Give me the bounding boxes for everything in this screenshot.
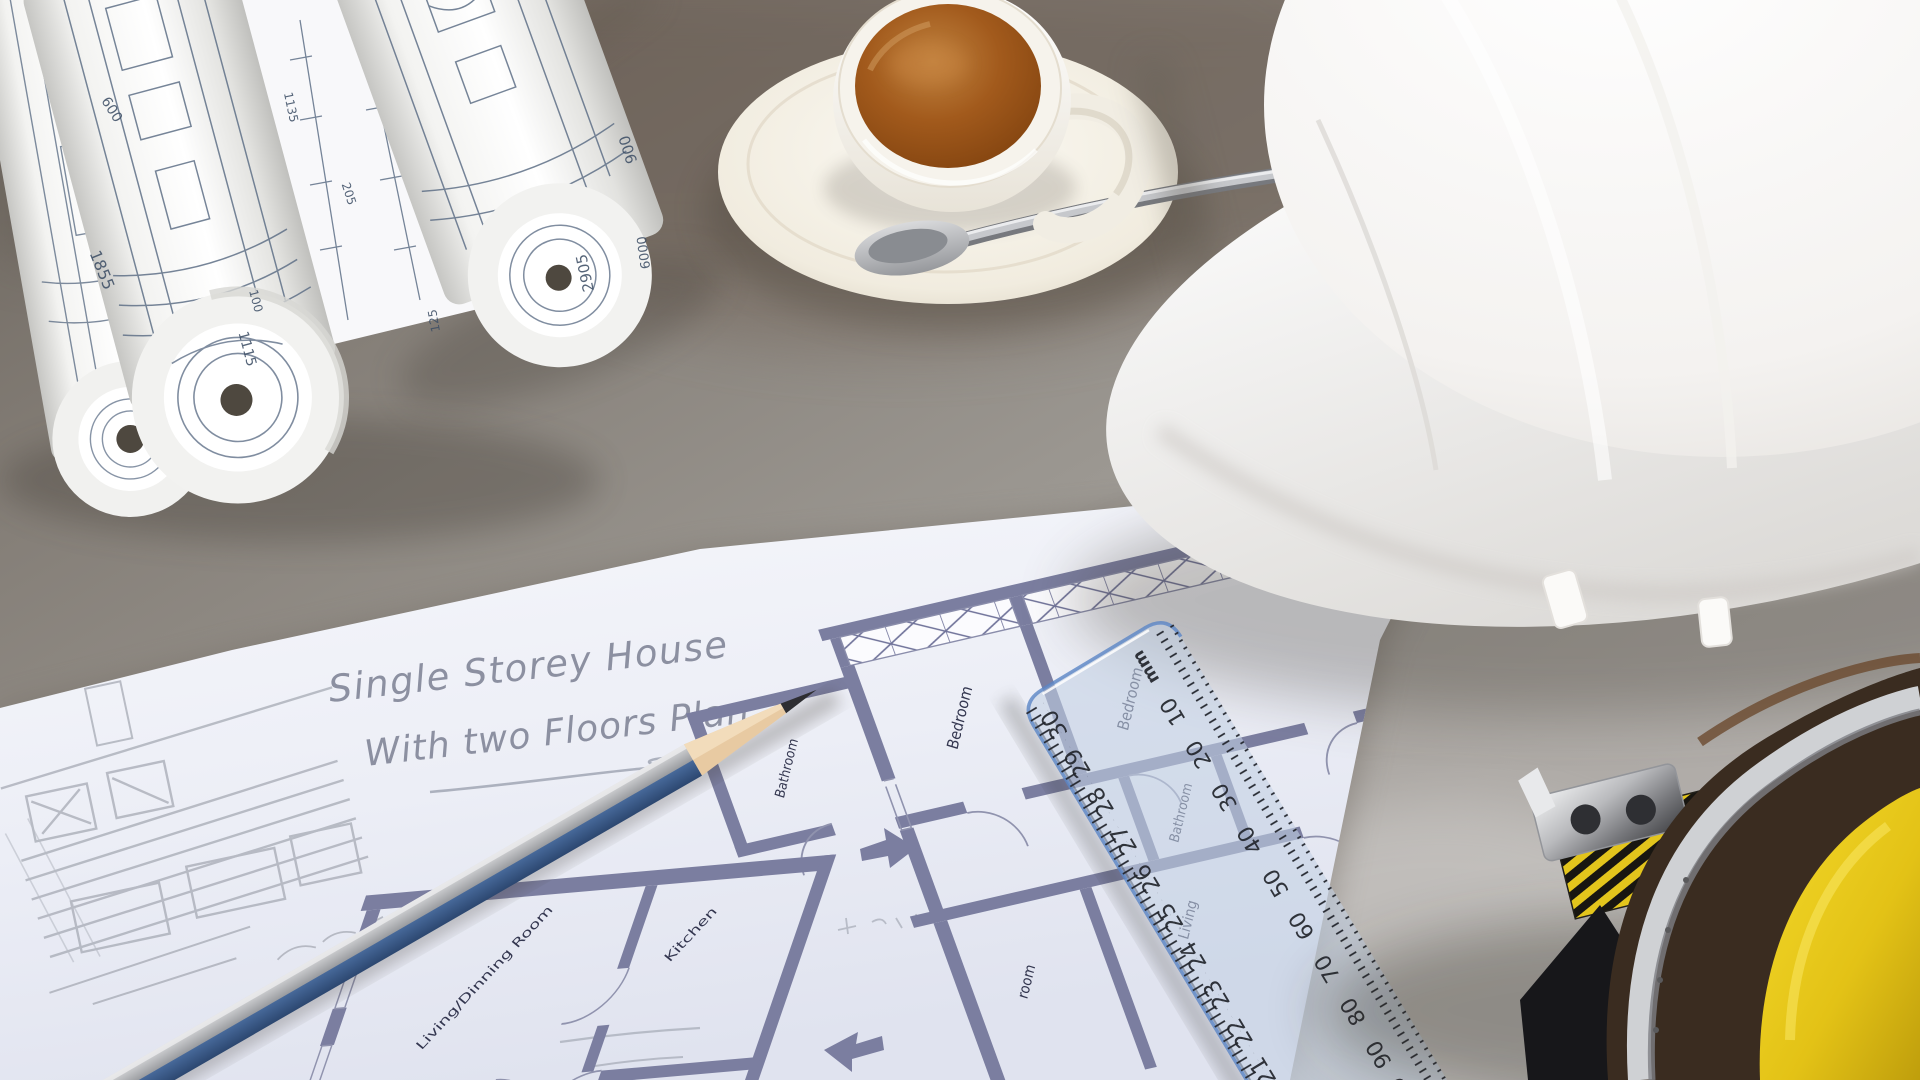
construction-desk-photo: Single Storey House With two Floors Plan bbox=[0, 0, 1920, 1080]
hat-accessory-slot-right bbox=[1698, 597, 1733, 648]
photo-canvas: Single Storey House With two Floors Plan bbox=[0, 0, 1920, 1080]
espresso-coffee bbox=[855, 4, 1041, 168]
